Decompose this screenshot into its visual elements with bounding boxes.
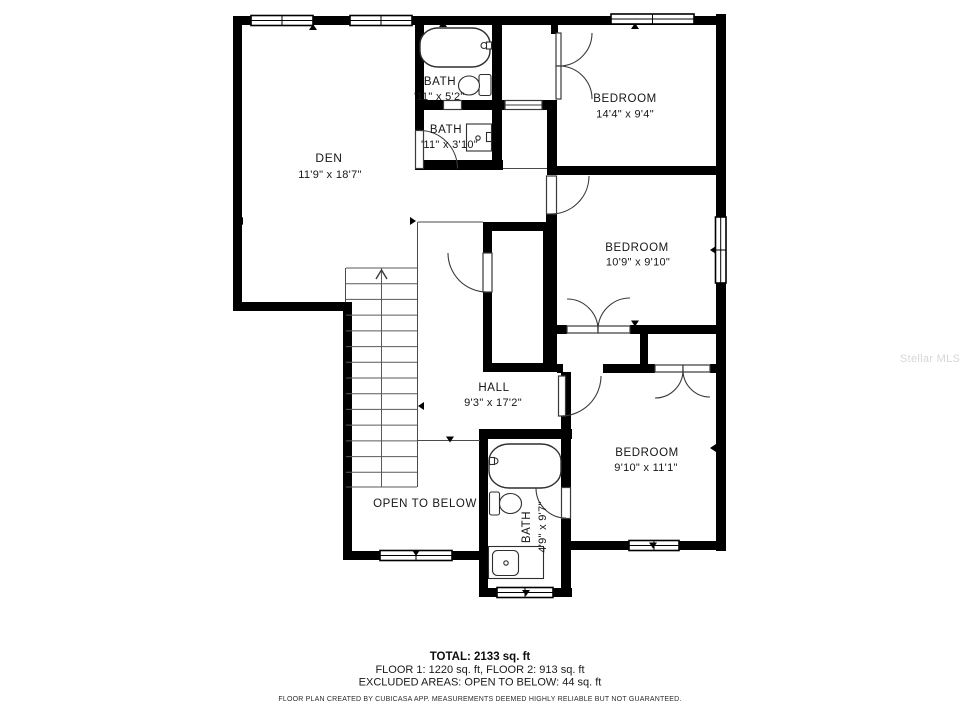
room-dims: 10'9" x 9'10" xyxy=(606,257,670,269)
floor-plan-page: DEN 11'9" x 18'7" BATH '11" x 5'2" BATH … xyxy=(0,0,960,720)
double-closet-door-icon xyxy=(655,365,710,398)
room-den: DEN 11'9" x 18'7" xyxy=(298,151,361,181)
room-dims: 11'9" x 18'7" xyxy=(298,169,361,181)
room-label: BEDROOM xyxy=(605,242,669,254)
bathtub-icon xyxy=(420,28,492,67)
summary-excluded: EXCLUDED AREAS: OPEN TO BELOW: 44 sq. ft xyxy=(359,677,602,689)
room-dims: 14'4" x 9'4" xyxy=(596,109,654,121)
bathtub-icon xyxy=(489,444,561,488)
room-label: BEDROOM xyxy=(615,447,679,459)
window-icon xyxy=(350,16,412,26)
room-hall: HALL 9'3" x 17'2" xyxy=(464,382,522,409)
room-dims: '11" x 3'10" xyxy=(421,139,478,151)
room-dims: '11" x 5'2" xyxy=(414,91,465,103)
summary-total: TOTAL: 2133 sq. ft xyxy=(430,651,531,663)
room-label: HALL xyxy=(478,382,509,394)
room-boundary-lines xyxy=(346,169,548,488)
double-closet-door-icon xyxy=(556,33,592,99)
door-icon xyxy=(559,376,602,416)
double-closet-door-icon xyxy=(567,298,630,333)
door-icon xyxy=(547,176,590,214)
room-label: BATH xyxy=(424,76,456,88)
room-dims: 9'3" x 17'2" xyxy=(464,397,522,409)
floor-plan-drawing: DEN 11'9" x 18'7" BATH '11" x 5'2" BATH … xyxy=(0,0,960,720)
room-dims: 4'9" x 9'7" xyxy=(537,501,549,552)
staircase xyxy=(346,268,417,487)
toilet-icon xyxy=(490,492,522,515)
sliding-door-icon xyxy=(505,101,542,110)
window-icon xyxy=(611,14,694,24)
room-label: BEDROOM xyxy=(593,93,657,105)
summary-block: TOTAL: 2133 sq. ft FLOOR 1: 1220 sq. ft,… xyxy=(278,651,681,703)
room-dims: 9'10" x 11'1" xyxy=(614,462,677,474)
sink-vanity-icon xyxy=(489,547,544,579)
window-icon xyxy=(716,217,727,283)
door-icon xyxy=(448,253,492,292)
room-label: DEN xyxy=(315,151,342,165)
room-bath-bottom: BATH 4'9" x 9'7" xyxy=(521,501,549,552)
room-bedroom-mid: BEDROOM 10'9" x 9'10" xyxy=(605,242,670,269)
watermark: Stellar MLS xyxy=(900,353,960,365)
room-bedroom-bottom: BEDROOM 9'10" x 11'1" xyxy=(614,447,679,474)
summary-disclaimer: FLOOR PLAN CREATED BY CUBICASA APP. MEAS… xyxy=(278,696,681,703)
summary-floors: FLOOR 1: 1220 sq. ft, FLOOR 2: 913 sq. f… xyxy=(375,664,584,676)
room-bedroom-top: BEDROOM 14'4" x 9'4" xyxy=(593,93,657,121)
room-label: BATH xyxy=(521,511,533,543)
room-open-to-below: OPEN TO BELOW xyxy=(373,498,477,510)
window-icon xyxy=(251,16,313,26)
room-label: OPEN TO BELOW xyxy=(373,498,477,510)
room-label: BATH xyxy=(430,124,462,136)
